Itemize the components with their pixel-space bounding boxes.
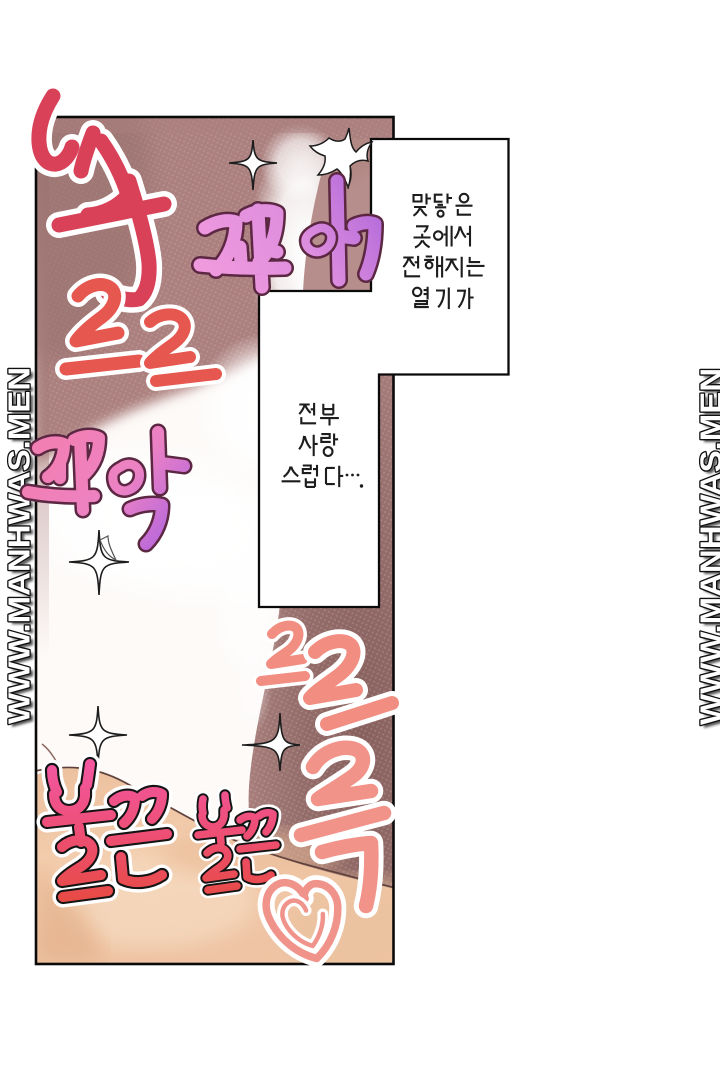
svg-text:WWW.MANHWAS.MEN: WWW.MANHWAS.MEN [694,368,720,725]
svg-text:WWW.MANHWAS.MEN: WWW.MANHWAS.MEN [2,367,37,724]
